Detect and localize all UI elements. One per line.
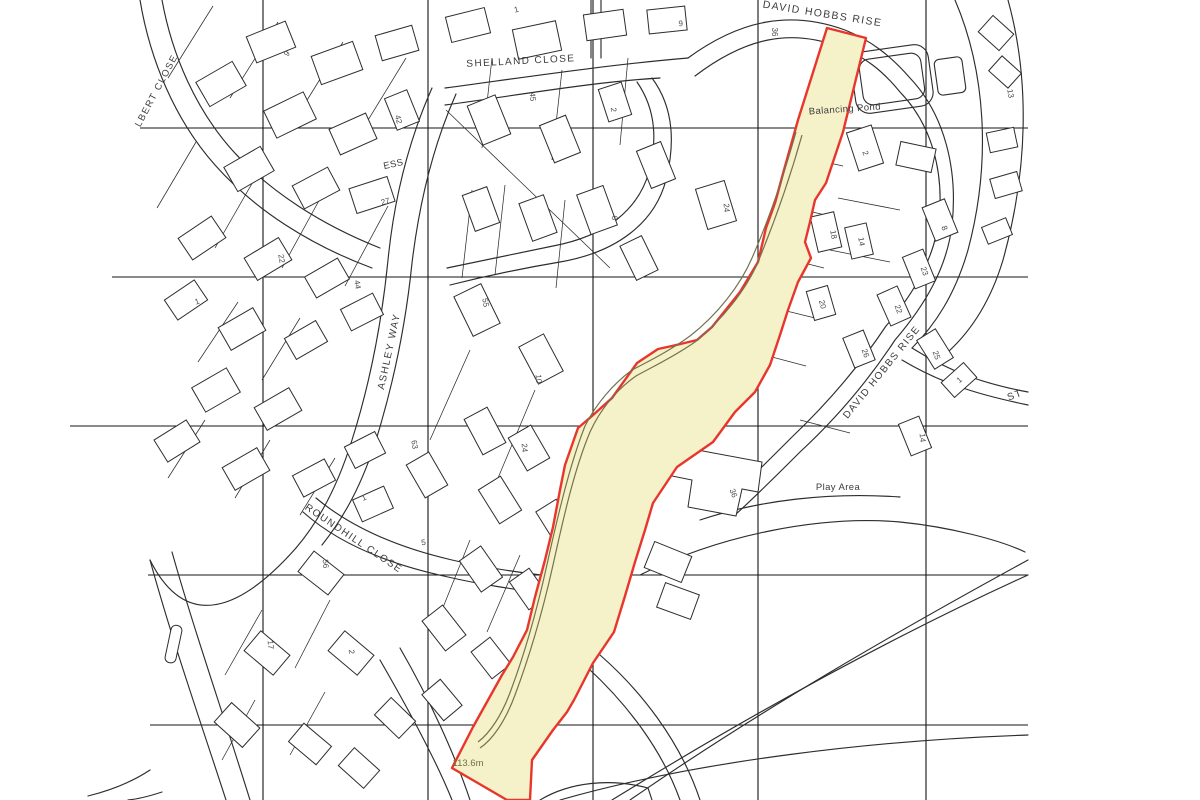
street-label: SHELLAND CLOSE xyxy=(466,53,576,70)
house-number: 44 xyxy=(352,279,363,290)
map-canvas: DAVID HOBBS RISESHELLAND CLOSEASHLEY WAY… xyxy=(0,0,1200,800)
ordnance-map: DAVID HOBBS RISESHELLAND CLOSEASHLEY WAY… xyxy=(0,0,1200,800)
house-number: 63 xyxy=(409,439,420,450)
spot-height-label: 113.6m xyxy=(453,758,484,769)
house-number: 14 xyxy=(918,433,928,443)
house-number: 1 xyxy=(513,5,520,15)
street-label: DAVID HOBBS RISE xyxy=(762,0,883,29)
house-number: 36 xyxy=(770,28,779,37)
house-number: 10 xyxy=(534,374,544,384)
street-label: ST xyxy=(1006,388,1024,404)
house-number: 5 xyxy=(421,538,427,548)
area-label: ESS xyxy=(382,157,404,172)
house-number: 17 xyxy=(266,640,276,650)
house-number: 45 xyxy=(528,92,538,102)
area-label: Play Area xyxy=(816,482,861,493)
house-number: 24 xyxy=(722,203,732,213)
house-number: 24 xyxy=(520,443,530,453)
house-number: 56 xyxy=(321,559,331,569)
house-number: 13 xyxy=(1005,88,1016,99)
